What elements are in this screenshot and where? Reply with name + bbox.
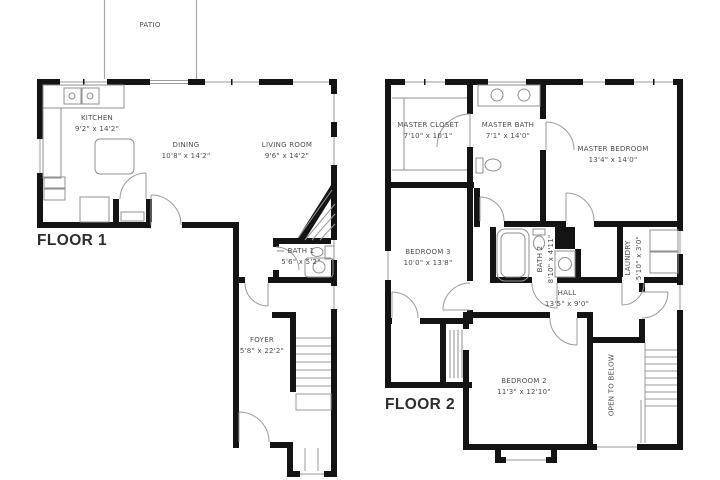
room-name: FOYER <box>240 335 284 346</box>
master-closet-label: MASTER CLOSET 7'10" x 10'1" <box>397 120 459 142</box>
hall-label: HALL 13'5" x 9'0" <box>545 288 589 310</box>
room-dims: 5'8" x 22'2" <box>240 346 284 357</box>
laundry-label: LAUNDRY 5'10" x 3'0" <box>623 236 645 280</box>
room-dims: 13'4" x 14'0" <box>577 155 648 166</box>
room-name: LIVING ROOM <box>262 140 312 151</box>
master-bath-label: MASTER BATH 7'1" x 14'0" <box>482 120 534 142</box>
room-dims: 5'10" x 3'0" <box>634 236 645 280</box>
bedroom3-label: BEDROOM 3 10'0" x 13'8" <box>404 247 453 269</box>
laundry-machines <box>650 230 678 273</box>
room-dims: 11'3" x 12'10" <box>497 387 551 398</box>
room-dims: 13'5" x 9'0" <box>545 299 589 310</box>
room-name: BEDROOM 2 <box>497 376 551 387</box>
room-dims: 10'0" x 13'8" <box>404 258 453 269</box>
patio-label: PATIO <box>139 21 160 29</box>
foyer-label: FOYER 5'8" x 22'2" <box>240 335 284 357</box>
kitchen-fixtures <box>43 85 144 222</box>
floor2-title: FLOOR 2 <box>385 396 455 414</box>
floor1-stairs <box>296 190 335 471</box>
living-room-label: LIVING ROOM 9'6" x 14'2" <box>262 140 312 162</box>
room-dims: 8'10" x 4'11" <box>546 235 557 284</box>
floorplan-page: PATIO KITCHEN 9'2" x 14'2" DINING 10'8" … <box>0 0 720 480</box>
bedroom2-closet-shelves <box>450 330 462 378</box>
room-name: BEDROOM 3 <box>404 247 453 258</box>
room-dims: 5'6" x 5'2" <box>281 257 320 268</box>
bedroom2-label: BEDROOM 2 11'3" x 12'10" <box>497 376 551 398</box>
bath1-label: BATH 1 5'6" x 5'2" <box>281 246 320 268</box>
room-name: LAUNDRY <box>623 236 634 280</box>
room-name: BATH 2 <box>535 235 546 284</box>
room-dims: 9'2" x 14'2" <box>75 124 119 135</box>
room-name: HALL <box>545 288 589 299</box>
room-dims: 7'10" x 10'1" <box>397 131 459 142</box>
room-dims: 7'1" x 14'0" <box>482 131 534 142</box>
room-name: MASTER BEDROOM <box>577 144 648 155</box>
room-name: OPEN TO BELOW <box>607 354 618 416</box>
room-name: MASTER BATH <box>482 120 534 131</box>
floor1-title: FLOOR 1 <box>37 232 107 250</box>
floor1-walls <box>37 79 337 477</box>
room-name: KITCHEN <box>75 113 119 124</box>
kitchen-label: KITCHEN 9'2" x 14'2" <box>75 113 119 135</box>
master-bedroom-label: MASTER BEDROOM 13'4" x 14'0" <box>577 144 648 166</box>
bath2-label: BATH 2 8'10" x 4'11" <box>535 235 557 284</box>
room-name: DINING <box>162 140 211 151</box>
room-name: BATH 1 <box>281 246 320 257</box>
room-dims: 9'6" x 14'2" <box>262 151 312 162</box>
room-name: MASTER CLOSET <box>397 120 459 131</box>
room-dims: 10'8" x 14'2" <box>162 151 211 162</box>
patio-outline <box>105 0 197 79</box>
floor2-stairs <box>641 343 677 443</box>
open-to-below-label: OPEN TO BELOW <box>607 354 618 416</box>
dining-label: DINING 10'8" x 14'2" <box>162 140 211 162</box>
